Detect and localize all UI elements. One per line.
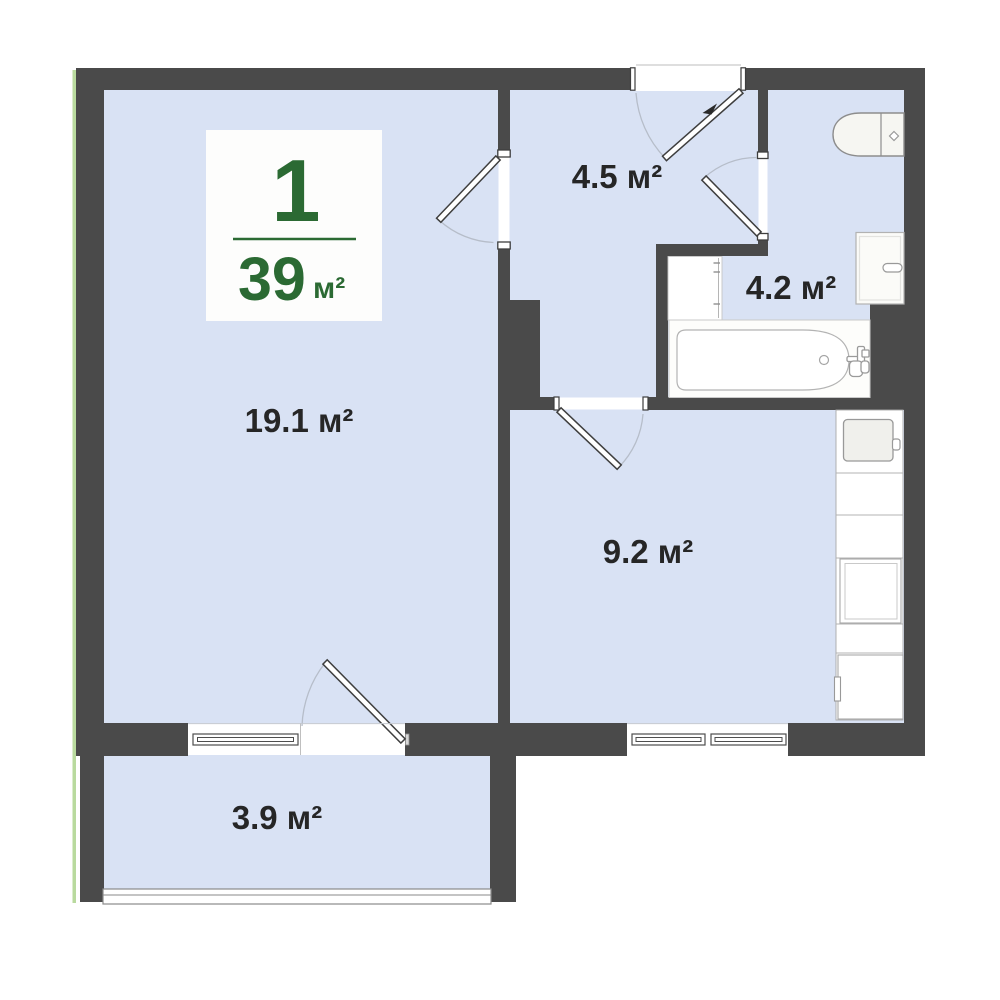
svg-text:4.5 м²: 4.5 м² <box>572 158 662 195</box>
svg-text:39: 39 <box>238 245 306 313</box>
svg-text:3.9 м²: 3.9 м² <box>232 799 322 836</box>
svg-text:9.2 м²: 9.2 м² <box>603 533 693 570</box>
svg-text:19.1 м²: 19.1 м² <box>245 402 354 439</box>
svg-text:1: 1 <box>272 141 321 240</box>
svg-text:м²: м² <box>313 272 345 305</box>
svg-text:4.2 м²: 4.2 м² <box>746 269 836 306</box>
